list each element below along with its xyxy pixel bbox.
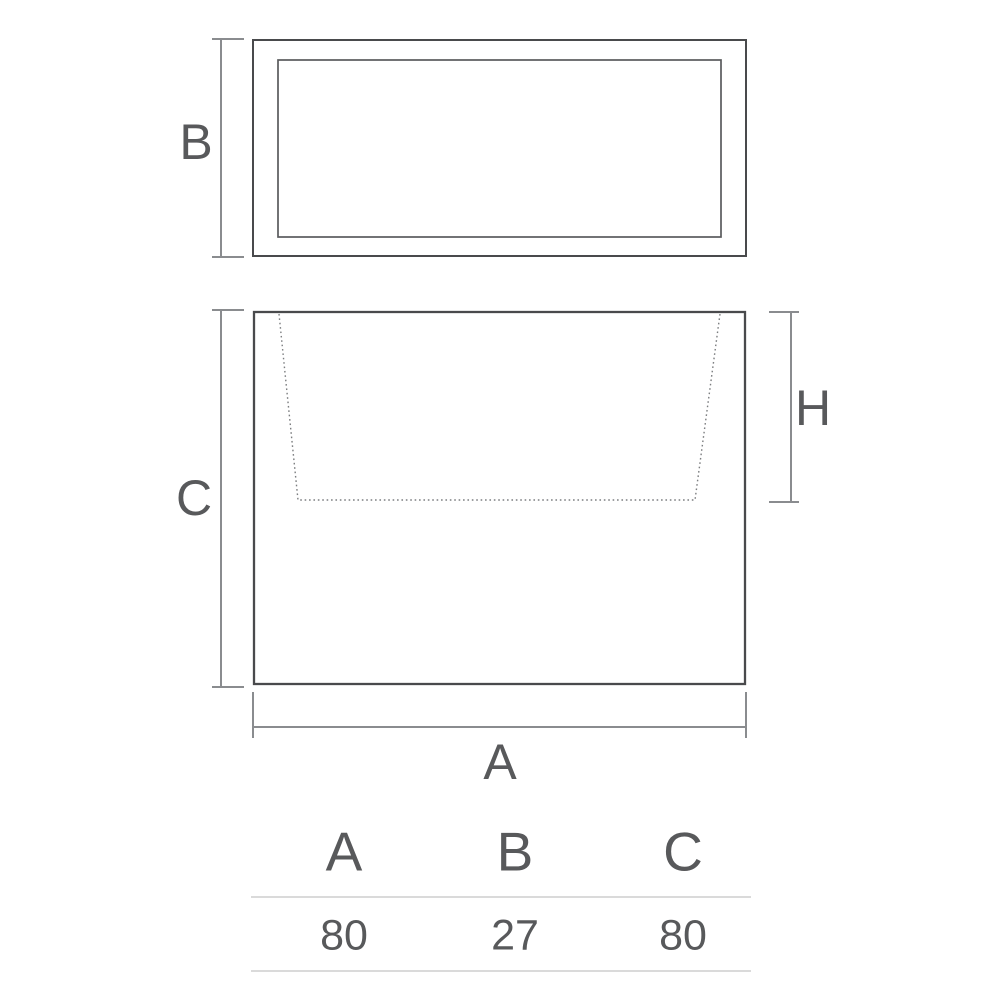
spec-table-rule-bottom (251, 970, 751, 972)
spec-table-header-c: C (663, 825, 703, 880)
spec-table-value-c: 80 (659, 915, 707, 958)
cavity-dotted-outline (279, 314, 720, 500)
spec-table-value-b: 27 (491, 915, 539, 958)
front-view (254, 312, 745, 684)
dimension-c-label: C (176, 473, 212, 523)
front-view-outline (254, 312, 745, 684)
spec-table-value-a: 80 (320, 915, 368, 958)
dimension-b-label: B (179, 117, 212, 167)
top-view-outer-rect (253, 40, 746, 256)
spec-table: A B C 80 27 80 (251, 818, 751, 988)
dimension-h-label: H (795, 383, 831, 433)
dimension-diagram-page: B C H A A B C 80 27 80 (0, 0, 1000, 1000)
top-view-inner-rect (278, 60, 721, 237)
dimension-c (212, 310, 244, 687)
dimension-a (253, 692, 746, 738)
spec-table-rule-top (251, 896, 751, 898)
top-view (253, 40, 746, 256)
spec-table-header-b: B (497, 825, 534, 880)
dimension-b (212, 39, 244, 257)
spec-table-header-a: A (326, 825, 363, 880)
dimension-a-label: A (483, 737, 516, 787)
